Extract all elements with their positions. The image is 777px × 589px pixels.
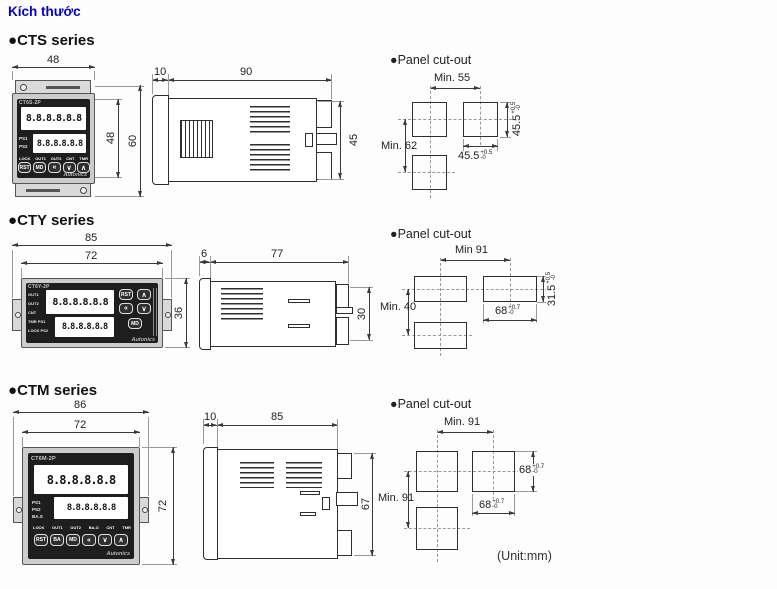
indicator-bas: BA.S (32, 514, 43, 519)
cutout-heading-label: Panel cut-out (398, 53, 472, 67)
dim-label: 85 (271, 411, 283, 423)
cty-heading: ●CTY series (8, 212, 94, 229)
extension-line (203, 419, 204, 444)
dim-line-height (173, 447, 174, 565)
extension-line (337, 419, 338, 451)
cutout-hole (463, 102, 498, 137)
dim-line-hole-height (507, 102, 508, 137)
indicator-row: TMR PS1 (28, 319, 45, 324)
tol-minus: -0 (492, 505, 504, 511)
bullet-icon: ● (8, 32, 17, 49)
panel-latch (322, 497, 330, 510)
dim-line-bezel (199, 262, 210, 263)
lcd-display-top: 8.8.8.8.8.8 (21, 107, 86, 130)
dim-label-hole-height: 45.5+0.5-0 (511, 98, 523, 140)
screw (16, 507, 22, 513)
dim-label: 67 (360, 494, 372, 514)
extension-line (168, 74, 169, 96)
rst-button: RST (34, 534, 48, 546)
dim-line-width-inner (22, 432, 140, 433)
indicator-ps1: PS1 (32, 500, 41, 505)
dimensions-page: Kích thước ●CTS series 48 CT6S-2P 8.8.8.… (0, 0, 777, 589)
dim-label: 10 (154, 66, 166, 78)
dim-label-vspan: Min. 91 (378, 492, 414, 504)
extension-line (210, 256, 211, 279)
cutout-hole (412, 155, 447, 190)
dim-label-hspan: Min. 55 (434, 72, 470, 84)
panel-latch (305, 133, 313, 147)
cts-cutout-heading: ●Panel cut-out (390, 53, 471, 67)
extension-line (94, 71, 95, 80)
vent-slat (300, 512, 316, 516)
status-cnt: CNT (66, 156, 74, 161)
status-out2: OUT2 (70, 525, 81, 530)
dim-label-vspan: Min. 40 (380, 301, 416, 313)
shift-button-icon: « (82, 534, 96, 546)
cts-device-face: CT6S-2P 8.8.8.8.8.8 PS1 PS2 8.8.8.8.8.8 … (17, 99, 90, 178)
cutout-hole (414, 322, 467, 349)
dim-line-height (369, 287, 370, 340)
dim-label-hspan: Min 91 (455, 244, 488, 256)
shift-button-icon: « (119, 303, 133, 314)
dim-label: 86 (74, 399, 86, 411)
ba-button: BA (50, 534, 64, 546)
extension-line (139, 437, 140, 447)
dim-line-depth (168, 80, 332, 81)
vent-slots (250, 106, 290, 135)
rst-button: RST (119, 289, 133, 300)
extension-line (331, 74, 332, 99)
dim-line-hole-width (463, 146, 498, 147)
cutout-hole (416, 451, 458, 492)
dim-label: 72 (85, 250, 97, 262)
dim-value: 68 (495, 305, 507, 317)
screw (142, 507, 148, 513)
status-lock: LOCK (19, 156, 30, 161)
up-button-icon: ∧ (137, 289, 151, 300)
dim-value: 31.5 (546, 285, 558, 306)
vent-slat (288, 299, 310, 303)
dim-label: 10 (204, 411, 216, 423)
bullet-icon: ● (390, 397, 398, 411)
indicator-ps1: PS1 (19, 136, 28, 141)
indicator-ps2: PS2 (32, 507, 41, 512)
indicator-ps2: PS2 (19, 144, 28, 149)
extension-line (13, 417, 14, 496)
tol-minus: -0 (552, 272, 558, 284)
vent-grille (180, 120, 213, 158)
tol-minus: -0 (532, 470, 544, 476)
extension-line (12, 71, 13, 80)
cty-device-face: CT6Y-2P OUT1 OUT2 CNT TMR PS1 LOCK PS2 8… (26, 283, 158, 343)
dim-value: 68 (479, 499, 491, 511)
md-button: MD (33, 162, 46, 173)
dim-line-hspan (440, 260, 510, 261)
dim-value: 45.5 (511, 115, 523, 136)
status-label-row: LOCK OUT1 OUT2 BA.O CNT TMR (33, 525, 131, 530)
dim-label: 72 (74, 419, 86, 431)
status-lock: LOCK (33, 525, 44, 530)
rst-button: RST (18, 162, 31, 173)
mounting-ear-right (162, 299, 172, 331)
bullet-icon: ● (8, 212, 17, 229)
down-button-icon: ∨ (137, 303, 151, 314)
ctm-heading-label: CTM series (17, 382, 97, 399)
terminal-block (337, 530, 352, 556)
tol-minus: -0 (517, 102, 523, 114)
terminal-block (316, 152, 332, 180)
cutout-heading-label: Panel cut-out (398, 227, 472, 241)
tol-minus: -0 (508, 311, 520, 317)
dim-label-vspan: Min. 62 (381, 140, 417, 152)
dim-line-depth (210, 262, 349, 263)
dim-line-bezel (152, 80, 168, 81)
cutout-heading-label: Panel cut-out (398, 397, 472, 411)
extension-line (22, 437, 23, 447)
status-out2: OUT2 (51, 156, 62, 161)
tol-minus: -0 (480, 156, 492, 162)
brand-logo: Autonics (106, 551, 130, 557)
vent-slots (286, 462, 322, 488)
terminal-pin (336, 307, 353, 314)
cty-cutout-heading: ●Panel cut-out (390, 227, 471, 241)
status-tmr: TMR (122, 525, 131, 530)
dim-label: 36 (173, 303, 185, 323)
dim-line-height-outer (140, 85, 141, 197)
cutout-hole (483, 276, 537, 302)
dim-line-hspan (430, 88, 480, 89)
cutout-hole (412, 102, 447, 137)
extension-line (348, 256, 349, 283)
cts-heading: ●CTS series (8, 32, 95, 49)
bullet-icon: ● (8, 382, 17, 399)
cutout-hole (472, 451, 515, 492)
screw (80, 187, 87, 194)
lcd-display-top: 8.8.8.8.8.8 (46, 290, 114, 314)
dim-line-hole-width (483, 320, 537, 321)
dim-label-hole-width: 68+0.7-0 (478, 499, 505, 511)
dim-line-height (186, 278, 187, 348)
extension-line (318, 179, 344, 180)
extension-line (12, 250, 13, 298)
dim-label-hole-height: 31.5+0.5-0 (546, 267, 558, 311)
ctm-device-face: CT6M-2P 8.8.8.8.8.8 PS1 PS2 BA.S 8.8.8.8… (28, 453, 134, 559)
indicator-row: OUT1 (28, 292, 39, 297)
md-button: MD (128, 318, 142, 329)
mounting-bracket-top (15, 80, 91, 94)
dim-label-hspan: Min. 91 (444, 416, 480, 428)
ctm-heading: ●CTM series (8, 382, 97, 399)
brand-logo: Autonics (131, 337, 155, 343)
dim-label-hole-height: 68+0.7-0 (518, 464, 545, 476)
bullet-icon: ● (390, 53, 398, 67)
status-label-row: LOCK OUT1 OUT2 CNT TMR (19, 156, 88, 161)
extension-line (500, 137, 511, 138)
dim-line-hole-height (543, 276, 544, 302)
terminal-block (316, 100, 332, 128)
lcd-display-bottom: 8.8.8.8.8.8 (54, 497, 128, 519)
decor-stripes (153, 288, 157, 336)
extension-line (199, 256, 200, 276)
extension-line (148, 417, 149, 496)
brand-logo: Autonics (63, 172, 87, 178)
model-label: CT6S-2P (19, 100, 41, 106)
vent-slots (250, 144, 290, 173)
cts-heading-label: CTS series (17, 32, 95, 49)
dim-label: 85 (85, 232, 97, 244)
cutout-hole (414, 276, 467, 302)
lcd-display-top: 8.8.8.8.8.8 (34, 465, 128, 494)
bracket-slot (46, 86, 80, 89)
screw (165, 312, 171, 318)
dim-label: 6 (201, 248, 207, 260)
extension-line (162, 268, 163, 278)
dim-label: 48 (47, 54, 59, 66)
extension-line (171, 250, 172, 298)
extension-line (152, 74, 153, 94)
unit-note: (Unit:mm) (497, 549, 552, 563)
indicator-row: LOCK PS2 (28, 328, 48, 333)
terminal-pin (336, 492, 358, 506)
dim-value: 68 (519, 464, 531, 476)
page-title-link[interactable]: Kích thước (8, 4, 81, 19)
dim-line-height-inner (118, 99, 119, 178)
status-cnt: CNT (106, 525, 114, 530)
lcd-display-bottom: 8.8.8.8.8.8 (55, 317, 114, 337)
dim-line-height (340, 101, 341, 179)
bullet-icon: ● (390, 227, 398, 241)
indicator-row: OUT2 (28, 301, 39, 306)
terminal-block (336, 317, 349, 345)
bracket-slot (26, 189, 60, 192)
mounting-ear-right (139, 497, 149, 523)
dim-label: 60 (127, 131, 139, 151)
vent-slat (300, 491, 320, 495)
side-bezel (203, 447, 218, 560)
status-tmr: TMR (79, 156, 88, 161)
dim-label: 77 (271, 248, 283, 260)
dim-line-width-outer (12, 245, 172, 246)
model-label: CT6M-2P (31, 456, 56, 462)
dim-line-width (12, 67, 95, 68)
dim-label: 48 (105, 128, 117, 148)
terminal-pin (316, 133, 337, 145)
dim-label: 30 (356, 304, 368, 324)
side-bezel (152, 95, 169, 185)
ctm-cutout-heading: ●Panel cut-out (390, 397, 471, 411)
dim-line-depth (217, 425, 338, 426)
indicator-row: CNT (28, 310, 36, 315)
dim-label-hole-width: 45.5+0.5-0 (458, 150, 492, 162)
up-button-icon: ∧ (114, 534, 128, 546)
down-button-icon: ∨ (98, 534, 112, 546)
dim-line-width-inner (21, 263, 163, 264)
extension-line (217, 419, 218, 447)
status-out1: OUT1 (35, 156, 46, 161)
cty-heading-label: CTY series (17, 212, 94, 229)
dim-line-hspan (437, 432, 493, 433)
extension-line (350, 340, 373, 341)
mounting-bracket-bottom (15, 183, 91, 197)
dim-line-hole-width (472, 513, 515, 514)
dim-label: 45 (348, 130, 360, 150)
dim-line-bezel (203, 425, 217, 426)
dim-value: 45.5 (458, 150, 479, 162)
dim-label: 90 (240, 66, 252, 78)
dim-line-width-outer (13, 412, 149, 413)
extension-line (95, 86, 144, 87)
shift-button-icon: « (48, 162, 61, 173)
dim-label: 72 (157, 496, 169, 516)
vent-slat (288, 324, 310, 328)
dim-line-height (372, 453, 373, 556)
status-bao: BA.O (89, 525, 99, 530)
screw (20, 84, 27, 91)
vent-slots (240, 462, 274, 488)
lcd-display-bottom: 8.8.8.8.8.8 (33, 134, 86, 153)
extension-line (21, 268, 22, 278)
terminal-block (337, 453, 352, 479)
screw (15, 312, 21, 318)
cutout-hole (416, 507, 458, 550)
md-button: MD (66, 534, 80, 546)
dim-label-hole-width: 68+0.7-0 (494, 305, 521, 317)
vent-slots (221, 288, 263, 322)
status-out1: OUT1 (52, 525, 63, 530)
extension-line (95, 196, 144, 197)
